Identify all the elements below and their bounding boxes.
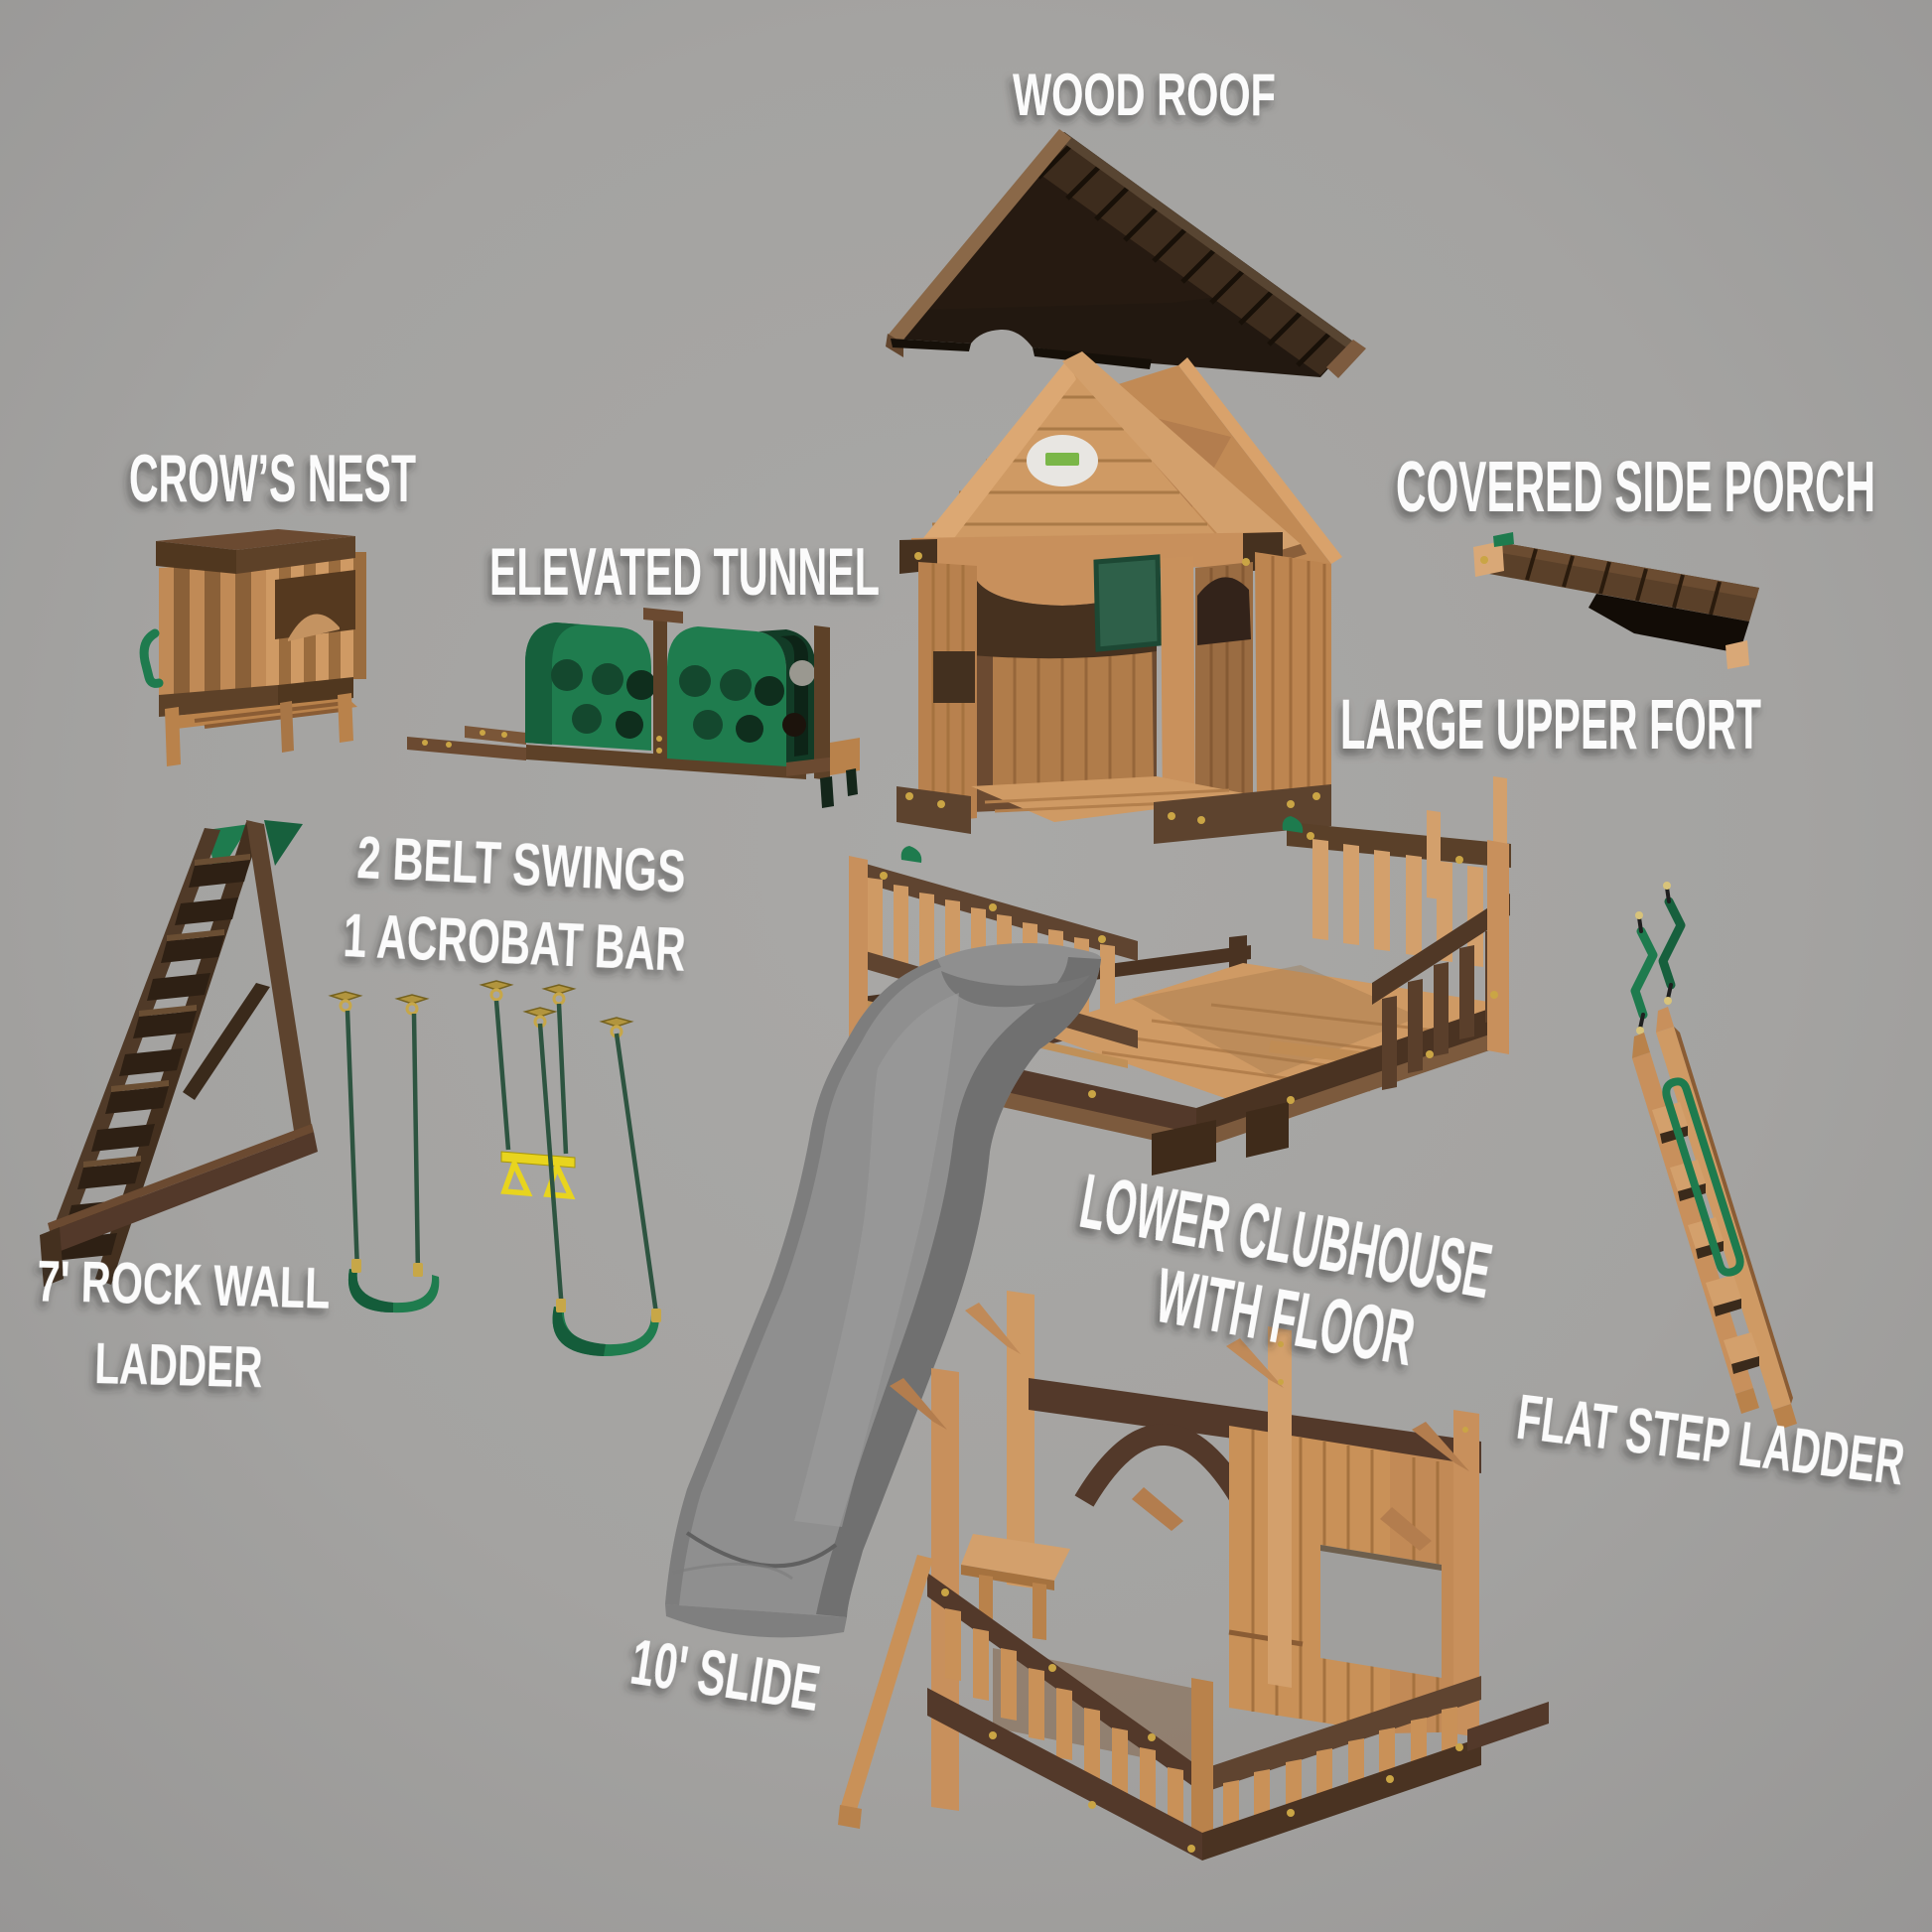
svg-text:COVERED SIDE PORCH: COVERED SIDE PORCH xyxy=(1396,448,1875,527)
svg-text:7' ROCK WALL: 7' ROCK WALL xyxy=(37,1249,332,1321)
svg-text:CROW’S NEST: CROW’S NEST xyxy=(129,441,416,516)
svg-text:LADDER: LADDER xyxy=(94,1331,264,1400)
svg-text:LARGE UPPER FORT: LARGE UPPER FORT xyxy=(1340,686,1761,764)
svg-text:ELEVATED TUNNEL: ELEVATED TUNNEL xyxy=(489,534,880,610)
svg-text:WOOD ROOF: WOOD ROOF xyxy=(1013,62,1276,128)
